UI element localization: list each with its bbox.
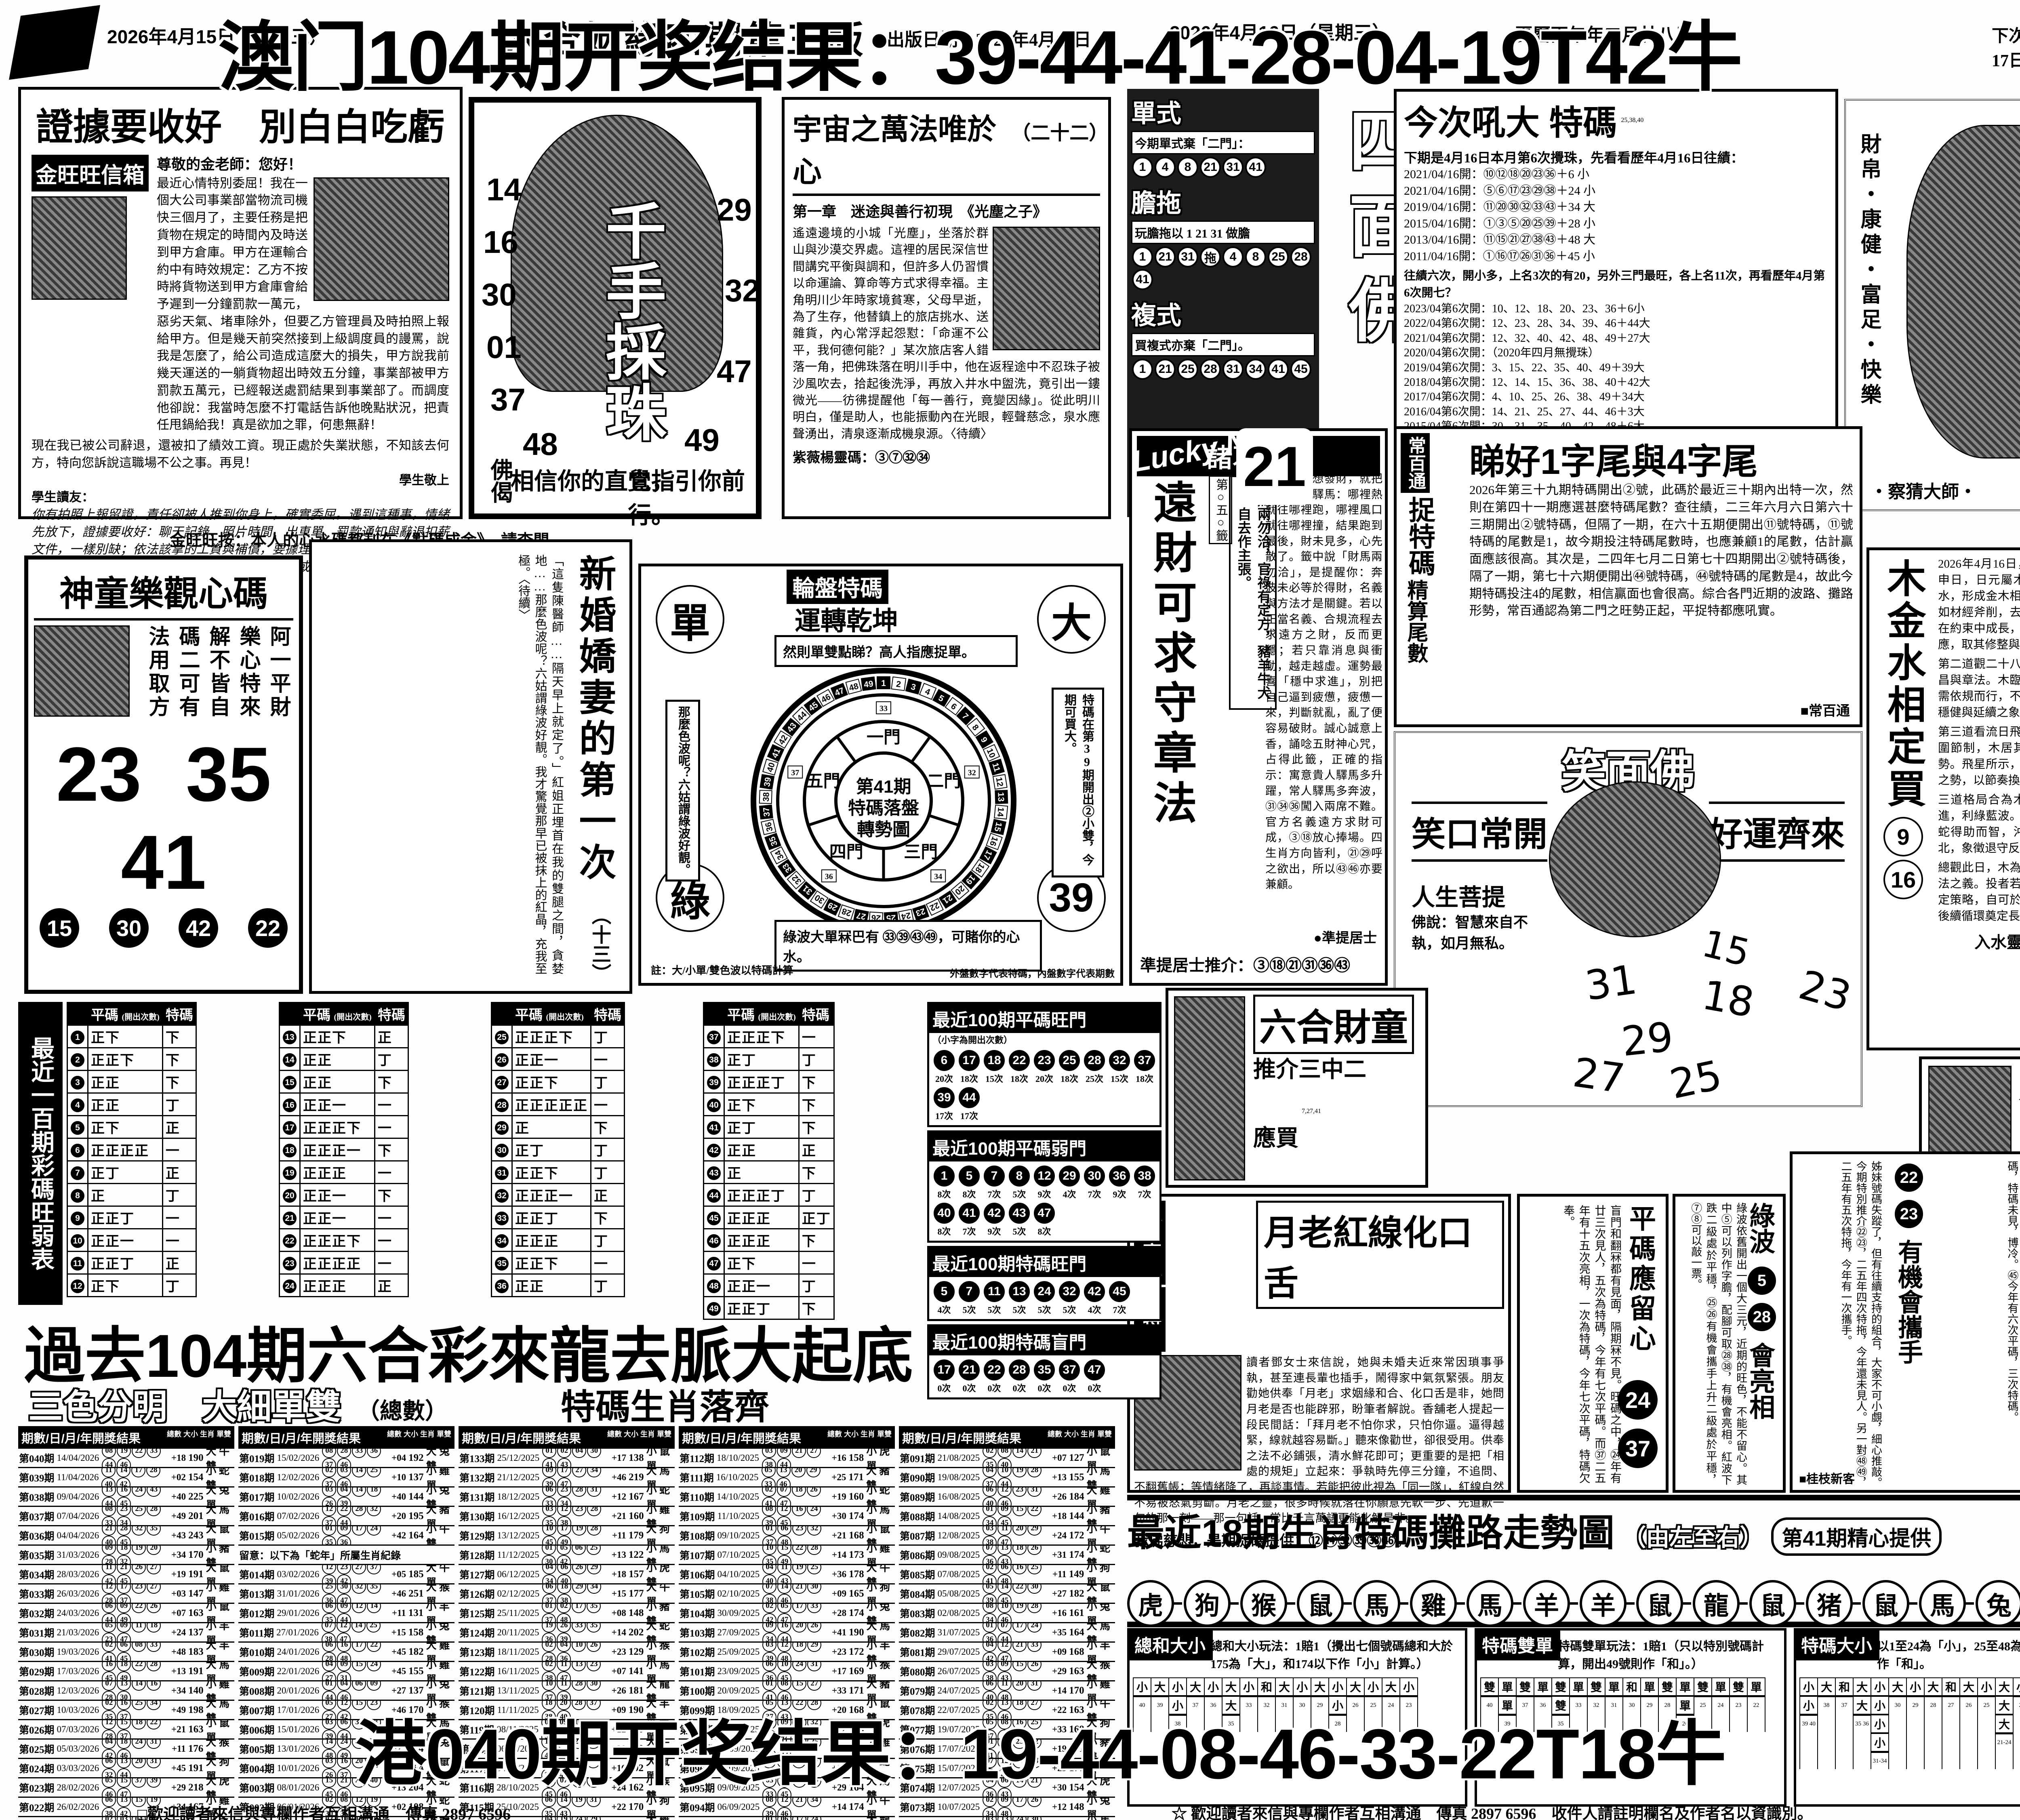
hot-item: 369次 bbox=[1108, 1165, 1131, 1200]
svg-text:49: 49 bbox=[863, 679, 874, 690]
zodiac-circle: 羊 bbox=[1580, 1580, 1627, 1627]
roar-history-line: 2021/04/16開：⑤⑥⑰㉓㉙㊳＋24 小 bbox=[1404, 183, 1828, 200]
roar-history1: 2021/04/16開：⑩⑫⑱⑳㉓㊱＋6 小2021/04/16開：⑤⑥⑰㉓㉙㊳… bbox=[1404, 166, 1828, 265]
lucky-number: 21 bbox=[1236, 428, 1313, 505]
hot-item: 370次 bbox=[1058, 1359, 1081, 1394]
tail-credit: ■常百通 bbox=[1800, 700, 1850, 720]
wood-code-line: 入水靈碼：⑤⑨⑬⑯㉓㉔ bbox=[1938, 929, 2020, 953]
bet-row-note: 玩膽拖以 1 21 31 做膽 bbox=[1131, 221, 1315, 244]
shentong-circle-num: 15 bbox=[40, 908, 79, 948]
laughing-buddha-image bbox=[1549, 781, 1721, 937]
result-row: 第072期08/07/2025 031324303845+21 174小 馬 雙 bbox=[899, 1817, 1115, 1820]
hot-item: 115次 bbox=[983, 1280, 1006, 1316]
thousand-hands-title: 千手採珠 bbox=[587, 200, 675, 442]
zodiac-paren: （由左至右） bbox=[1622, 1519, 1763, 1553]
hot-item: 417次 bbox=[958, 1202, 981, 1237]
hot-item: 2825次 bbox=[1083, 1049, 1106, 1085]
pingma-num-24: 24 bbox=[1618, 1380, 1658, 1420]
hot-item: 210次 bbox=[958, 1359, 981, 1394]
hot-item: 307次 bbox=[1083, 1165, 1106, 1200]
buddha-num: 37 bbox=[490, 381, 526, 418]
result-row: 第016期07/02/2026 122228323744+20 195大 豬 單 bbox=[238, 1507, 455, 1526]
wood-p3: 第三道看流日飛星，水氣暗伏滋養木氣，金氣外圍節制，木居其中平衡全局，形成定而不亂… bbox=[1938, 724, 2020, 789]
cosmos-photo bbox=[993, 227, 1100, 350]
route-sum-label: 總和大小 bbox=[1127, 1628, 1213, 1660]
wood-credit: ●李居明 bbox=[1938, 953, 2020, 972]
result-row: 第018期12/02/2026 020314253746+10 137小 雞 單 bbox=[238, 1468, 455, 1488]
hot-item: 350次 bbox=[1033, 1359, 1056, 1394]
zodiac-circle: 龍 bbox=[1693, 1580, 1740, 1627]
route-column: 和 27 bbox=[1942, 1677, 1959, 1769]
result-row: 第103期27/09/2025 091620263444+41 190大 馬 單 bbox=[679, 1623, 895, 1643]
result-row: 第128期11/12/2025 010506253042+13 122小 馬 雙 bbox=[459, 1546, 675, 1565]
cosmos-chapter: （二十二） bbox=[1011, 117, 1100, 145]
fortune-child-image bbox=[1174, 996, 1245, 1180]
buddha-num: 01 bbox=[486, 329, 522, 366]
zhuge-credit: ●準提居士 bbox=[1313, 927, 1377, 947]
hot-panel-note: （小字為開出次數） bbox=[929, 1033, 1159, 1046]
cosmos-panel: 宇宙之萬法唯於心 （二十二） 第一章 迷途與善行初現 《光塵之子》 遙遠邊境的小… bbox=[782, 97, 1111, 519]
roar-history-line: 2019/04/16開：⑪⑳㉚㉜㉝㊸＋34 大 bbox=[1404, 199, 1828, 216]
result-row: 第094期06/09/2025 081221343946+14 174小 牛 單 bbox=[679, 1798, 895, 1817]
result-row: 第124期20/11/2025 192633353639+14 202大 蛇 雙 bbox=[459, 1623, 675, 1643]
poem-line: 財來自有方 bbox=[142, 696, 293, 719]
route-column: 小 21 bbox=[2013, 1677, 2020, 1769]
hot-item: 620次 bbox=[933, 1049, 955, 1085]
result-row: 第026期07/03/2026 121518222837+21 163小 鼠 單 bbox=[18, 1720, 234, 1740]
hot-item: 170次 bbox=[933, 1359, 955, 1394]
roar-note1: 往績六次，開小多，上名3次的有20，另外三門最旺，各上名11次，再看歷年4月第6… bbox=[1404, 266, 1828, 300]
greenwave-num-28: 28 bbox=[1748, 1303, 1776, 1331]
yuelao-title: 月老紅線化口舌 bbox=[1256, 1201, 1504, 1309]
history-col-1: 期數/日/月/年開獎結果總數 大小 生肖 單雙 第040期14/04/2026 … bbox=[18, 1426, 234, 1820]
route-column: 和 37 bbox=[1835, 1677, 1853, 1769]
roar-history-line: 2013/04/16開：⑪⑮㉑㉗㊳㊸＋48 大 bbox=[1404, 232, 1828, 248]
hot-item: 129次 bbox=[1033, 1165, 1056, 1200]
result-row: 第090期19/08/2025 041019283744+13 155小 馬 雙 bbox=[899, 1468, 1115, 1488]
route-panel-size: 特碼大小 以1至24為「小」，25至48為「大」，開49則作「和」。 小小 39… bbox=[1794, 1628, 2020, 1807]
result-row: 第082期31/07/2025 010717243644+35 164大 馬 雙 bbox=[899, 1623, 1115, 1643]
result-row: 第033期26/03/2026 121723272837+03 147小 雞 單 bbox=[18, 1584, 234, 1604]
result-row: 第104期30/09/2025 020517334247+28 174小 兔 雙 bbox=[679, 1604, 895, 1623]
result-row: 第122期16/11/2025 021113233847+07 141小 馬 單 bbox=[459, 1662, 675, 1681]
letter-badge: 金旺旺信箱 bbox=[32, 155, 149, 191]
zodiac-circle: 鼠 bbox=[1749, 1580, 1796, 1627]
buddha-num: 16 bbox=[483, 224, 518, 261]
svg-text:37: 37 bbox=[762, 807, 772, 817]
hot-item: 3718次 bbox=[1133, 1049, 1156, 1085]
result-row: 第126期02/12/2025 061829343738+15 177大 牛 單 bbox=[459, 1584, 675, 1604]
zhuge-recommend: 準提居士推介：③⑱㉑㉛㊱㊸ bbox=[1140, 952, 1350, 976]
hot-item: 75次 bbox=[958, 1280, 981, 1316]
svg-text:1: 1 bbox=[881, 679, 886, 688]
svg-text:38: 38 bbox=[762, 792, 771, 802]
result-row: 第025期05/03/2026 041824314246+11 176大 猴 雙 bbox=[18, 1740, 234, 1759]
shentong-poem: 阿樂解碼法一心不二用平特皆可取財來自有方 bbox=[136, 625, 293, 718]
zodiac-circle: 猴 bbox=[1240, 1580, 1287, 1627]
shentong-big-num: 35 bbox=[186, 730, 271, 818]
route-column: 小小 39 40 bbox=[1799, 1677, 1817, 1769]
wood-p5: 總觀此日，木為本、金為界、水為養，奎宿示章法之義。投者若能在定日之中穩住心性，遵… bbox=[1938, 860, 2020, 924]
hotweak-table-3: 平碼 (開出次數)特碼25正正正下丁26正正一一27正正下丁28正正正正正一29… bbox=[491, 1002, 699, 1297]
greenwave-panel: 綠波 5 28 會亮相 綠波依舊開出一個大三元，近期的旺色，不能不留心。其中⑤可… bbox=[1673, 1194, 1786, 1493]
wood-p1: 2026年4月16日，二月廿九日，此日為丙午年庚申日，日元屬木，庚金透干制木，申… bbox=[1938, 556, 2020, 653]
ganesha-panel: 財帛・康健・富足・快樂 開運象神 ・察猜大師・ bbox=[1844, 99, 2020, 511]
hot-item: 470次 bbox=[1083, 1359, 1106, 1394]
hot-item: 58次 bbox=[958, 1165, 981, 1200]
result-row: 第080期26/07/2025 030915263843+29 163大 猴 雙 bbox=[899, 1662, 1115, 1681]
wood-metal-water-panel: 木金水相定買 9 16 2026年4月16日，二月廿九日，此日為丙午年庚申日，日… bbox=[1866, 547, 2020, 1050]
result-row: 第009期22/01/2026 040915242731+45 155小 雞 單 bbox=[238, 1662, 455, 1681]
result-row: 第123期18/11/2025 020410262836+23 129小 猴 單 bbox=[459, 1643, 675, 1662]
hotweak-table-2: 平碼 (開出次數)特碼13正正下正14正正丁15正正下16正正一一17正正正下一… bbox=[279, 1002, 487, 1297]
result-row: 第023期28/02/2026 051537394647+29 218大 虎 雙 bbox=[18, 1778, 234, 1798]
route-column: 大大 35 36 bbox=[1853, 1677, 1871, 1769]
svg-text:14: 14 bbox=[995, 807, 1006, 817]
ganesha-image bbox=[1906, 125, 2020, 459]
result-row: 第133期25/12/2025 010204304143+17 138小 鼠 單 bbox=[459, 1449, 675, 1468]
wheel-head-big: 運轉乾坤 bbox=[795, 600, 898, 638]
wheel-footnote: 外盤數字代表特碼，內盤數字代表期數 bbox=[950, 966, 1115, 980]
footer-right: ☆ 歡迎讀者來信與專欄作者互相溝通 傳真 2897 6596 收件人請註明欄名及… bbox=[1172, 1801, 1813, 1820]
tail-side-author: 常百通 bbox=[1401, 433, 1430, 493]
tema-credit: ■桂枝新客 bbox=[1799, 1469, 1855, 1487]
result-row: 第106期04/10/2025 041119254043+36 178大 牛 雙 bbox=[679, 1565, 895, 1584]
wood-p4: 三道格局合為木、金、水，剋中有生，定而能進，利綠藍波。生肖方面，利猴得申位而靈，… bbox=[1938, 792, 2020, 856]
hot-panel-pingma-hot: 最近100期平碼旺門 （小字為開出次數） 620次1718次1815次2218次… bbox=[927, 1002, 1161, 1127]
shentong-title: 神童樂觀心碼 bbox=[34, 565, 293, 621]
sisters-num-23: 23 bbox=[1895, 1200, 1923, 1228]
shentong-panel: 神童樂觀心碼 阿樂解碼法一心不二用平特皆可取財來自有方 23 35 41 153… bbox=[24, 555, 303, 994]
caitong-title: 六合財童 bbox=[1253, 995, 1414, 1054]
route-column: 小 25 bbox=[1977, 1677, 1995, 1769]
route-column: 小小小小 31-34 bbox=[1871, 1677, 1888, 1769]
hot-item: 245次 bbox=[1033, 1280, 1056, 1316]
result-row: 第131期18/12/2025 062328313334+12 167小 蛇 單 bbox=[459, 1488, 675, 1507]
zodiac-circle: 鼠 bbox=[1297, 1580, 1344, 1627]
zodiac-circle: 猪 bbox=[1806, 1580, 1853, 1627]
letter-writer-illustration bbox=[32, 196, 127, 300]
laughing-buddha-panel: 笑面佛 笑口常開 好運齊來 人生菩提 佛說：智慧來自不執，如月無私。 15 31… bbox=[1394, 731, 1862, 1107]
letter-p3: 現在我已被公司辭退，還被扣了績效工資。現正處於失業狀態，不知該去何方，特向您訴說… bbox=[32, 437, 449, 472]
roar-history-line: 2022/04第6次開：12、23、28、34、39、46＋44大 bbox=[1404, 316, 1828, 331]
result-row: 第086期09/08/2025 071318263643+31 174小 蛇 雙 bbox=[899, 1546, 1115, 1565]
pingma-num-37: 37 bbox=[1618, 1429, 1658, 1468]
letterbox-panel: 證據要收好 別白白吃虧 金旺旺信箱 尊敬的金老師：您好！ 最近心情特別委屈！我在… bbox=[18, 87, 463, 519]
cosmos-title: 宇宙之萬法唯於心 bbox=[793, 105, 1006, 190]
route-column: 大 28 bbox=[1924, 1677, 1942, 1769]
caitong-panel: 六合財童 推介三中二 應買 7,27,41 bbox=[1166, 988, 1428, 1188]
pingma-body: 盲門和翻冧都有見面，隔期冧不見。旺碼之中，㉔年有廿三次見人，五次為特碼，今年有七… bbox=[1526, 1205, 1622, 1483]
hot-item: 85次 bbox=[1008, 1165, 1031, 1200]
result-row: 第012期29/01/2026 060912143544+11 131小 羊 單 bbox=[238, 1604, 455, 1623]
xinhun-title: 新婚嬌妻的第一次 bbox=[568, 554, 621, 884]
hotweak-table-1: 平碼 (開出次數)特碼1正下下2正正下下3正正下4正正丁5正下正6正正正正一7正… bbox=[67, 1002, 275, 1297]
verse-line2: 它指引你前行。 bbox=[628, 462, 756, 530]
shentong-circles: 15304222 bbox=[34, 907, 293, 949]
hot-item: 408次 bbox=[933, 1202, 955, 1237]
zodiac-sequence: 虎狗猴鼠馬雞馬羊羊鼠龍鼠猪鼠馬兔蛇牛 bbox=[1127, 1580, 2020, 1627]
route-parity-label: 特碼雙單 bbox=[1475, 1628, 1560, 1660]
result-row: 第132期21/12/2025 091727343947+46 219大 馬 單 bbox=[459, 1468, 675, 1488]
result-row: 第112期18/10/2025 030921273844+16 158小 虎 單 bbox=[679, 1449, 895, 1468]
result-row: 第037期07/04/2026 082325283334+49 201大 馬 單 bbox=[18, 1507, 234, 1526]
zodiac-circle: 馬 bbox=[1919, 1580, 1966, 1627]
shentong-circle-num: 30 bbox=[109, 908, 149, 948]
baby-photo bbox=[34, 625, 130, 717]
footer-left: □歡迎讀者來信與專欄作者互相溝通 傳真 2897 6596 bbox=[137, 1801, 511, 1820]
laugh-hand-18: 18 bbox=[1699, 971, 1758, 1027]
wood-p2: 第二道觀二十八宿，奎宿值日，宿性屬木，主文昌與章法。木臨金日，為整頓與校正之象，… bbox=[1938, 656, 2020, 721]
corner-mark bbox=[9, 5, 100, 80]
result-row: 第038期09/04/2026 131624434445+40 225大 兔 單 bbox=[18, 1488, 234, 1507]
zodiac-circle: 鼠 bbox=[1636, 1580, 1683, 1627]
roar-history-line: 2021/04第6次開：12、32、40、42、48、49＋27大 bbox=[1404, 331, 1828, 346]
xinhun-chapter: （十三） bbox=[585, 905, 613, 983]
wood-headline: 木金水相定買 bbox=[1875, 558, 1931, 810]
hot-item: 77次 bbox=[983, 1165, 1006, 1200]
sisters-title: 有機會攜手 bbox=[1890, 1239, 1926, 1364]
pingma-title: 平碼應留心 bbox=[1621, 1205, 1660, 1354]
tail-side-catch: 捉特碼 bbox=[1401, 496, 1439, 576]
result-row: 第024期03/03/2026 061320313244+45 191大 狗 單 bbox=[18, 1759, 234, 1778]
greenwave-body: 綠波依舊開出一個大三元，近期的旺色，不能不留心。其中⑤可以列作字膽，配腳可取㉘㊳… bbox=[1679, 1202, 1748, 1485]
result-row: 第073期10/07/2025 020917263448+12 148小 兔 單 bbox=[899, 1798, 1115, 1817]
tema-panel: 特碼要吼住 16 45 近期的特碼走勢，轉開小號碼，今次究竟會開大還是小號碼？筆… bbox=[1790, 1151, 2020, 1493]
wheel-corner-da: 大 bbox=[1037, 585, 1106, 654]
route-column: 大大大 21-24 bbox=[1995, 1677, 2013, 1769]
result-row: 第125期25/11/2025 010217353748+08 148小 豬 雙 bbox=[459, 1604, 675, 1623]
bet-row-note: 買複式亦棄「二門」。 bbox=[1131, 333, 1315, 356]
roar-history-line: 2018/04第6次開：12、14、15、36、38、40＋42大 bbox=[1404, 375, 1828, 390]
bet-row-numbers: 148213141 bbox=[1131, 156, 1315, 179]
route-column: 雙 23 bbox=[1729, 1677, 1747, 1732]
result-row: 第088期14/08/2025 010915223445+18 144小 豬 雙 bbox=[899, 1507, 1115, 1526]
truck-photo bbox=[314, 177, 449, 301]
result-row: 第108期09/10/2025 010623323748+21 168小 鼠 雙 bbox=[679, 1526, 895, 1546]
hk-result-overlay: 港040期开奖结果：19-44-08-46-33-22T18牛 bbox=[356, 1697, 1725, 1799]
svg-text:37: 37 bbox=[791, 768, 799, 777]
laugh-quote: 佛說：智慧來自不執，如月無私。 bbox=[1412, 911, 1545, 953]
bet-row: 複式 買複式亦棄「二門」。 121252831344145 bbox=[1131, 295, 1315, 381]
roar-history-line: 2016/04第6次開：14、21、25、27、44、46＋3大 bbox=[1404, 405, 1828, 419]
svg-text:34: 34 bbox=[934, 872, 942, 881]
wheel-corner-dan: 單 bbox=[656, 585, 724, 654]
xinhun-panel: 新婚嬌妻的第一次 （十三） 「這隻陳醫師……隔天早上就定了。」紅姐正埋首在我的雙… bbox=[309, 539, 632, 994]
hot-item: 54次 bbox=[933, 1280, 955, 1316]
zodiac-circle: 狗 bbox=[1184, 1580, 1231, 1627]
hot-item: 294次 bbox=[1058, 1165, 1081, 1200]
hot-panel-tema-hot: 最近100期特碼旺門 54次75次115次135次245次325次424次457… bbox=[927, 1246, 1161, 1321]
svg-text:32: 32 bbox=[968, 768, 976, 777]
result-row: 第039期11/04/2026 111417284042+02 154小 蛇 雙 bbox=[18, 1468, 234, 1488]
roar-special-numbers: 25,38,40 bbox=[1621, 117, 1643, 124]
zodiac-circle: 馬 bbox=[1467, 1580, 1513, 1627]
letter-reply-head: 學生讀友： bbox=[32, 489, 449, 506]
result-row: 第010期24/01/2026 061617222848+45 182大 雞 單 bbox=[238, 1643, 455, 1662]
zodiac-circle: 兔 bbox=[1976, 1580, 2020, 1627]
bet-row: 膽拖 玩膽拖以 1 21 31 做膽 12131拖48252841 bbox=[1131, 183, 1315, 291]
tail-title: 睇好1字尾與4字尾 bbox=[1469, 433, 1758, 484]
zhuge-body: 有人一心想發財，就把自己變成驛馬：哪裡熱就往哪裡跑，哪裡風口就往哪裡撞，結果跑到… bbox=[1265, 471, 1382, 900]
hot-panel-tema-blind: 最近100期特碼盲門 170次210次220次280次350次370次470次 bbox=[927, 1324, 1161, 1399]
sisters-num-22: 22 bbox=[1895, 1164, 1923, 1192]
svg-text:36: 36 bbox=[825, 872, 833, 881]
wheel-arrow-bottom: 綠波大單冧巴有 ㉝㊴㊸㊾，可賭你的心水。 bbox=[774, 920, 1042, 972]
hot-item: 2320次 bbox=[1033, 1049, 1056, 1085]
wood-num-16: 16 bbox=[1883, 860, 1923, 899]
wheel-head-small: 輪盤特碼 bbox=[787, 570, 888, 604]
result-row: 第089期16/08/2025 061223314046+26 184大 雞 單 bbox=[899, 1488, 1115, 1507]
tema-body: 近期的特碼走勢，轉開小號碼，今次究竟會開大還是小號碼？筆者今次以大、小號碼各一作… bbox=[1961, 1161, 2020, 1488]
buddha-num: 30 bbox=[482, 276, 517, 313]
hot-item: 2518次 bbox=[1058, 1049, 1081, 1085]
result-row: 第129期13/12/2025 101719284549+11 179大 狗 單 bbox=[459, 1526, 675, 1546]
bet-row-label: 膽拖 bbox=[1131, 189, 1181, 217]
shentong-circle-num: 42 bbox=[179, 908, 218, 948]
shentong-big-num: 23 bbox=[56, 730, 141, 818]
result-row: 第028期12/03/2026 071314162830+34 140小 雞 雙 bbox=[18, 1681, 234, 1701]
wood-num-9: 9 bbox=[1883, 817, 1923, 856]
route-column: 小 29 bbox=[1906, 1677, 1924, 1769]
newspaper-page: 2026年4月15日（星期三） 六合姻緣四期第三版 出版日期：2026年4月16… bbox=[0, 0, 2020, 1820]
hot-item: 135次 bbox=[1008, 1280, 1031, 1316]
sisters-body: 姊妹號碼失蹤了，但有往續支持的組合，大家不可小覷，細心推敲。今期特別推介㉒㉓，二… bbox=[1798, 1161, 1883, 1488]
hot-item: 387次 bbox=[1133, 1165, 1156, 1200]
laugh-hand-25: 25 bbox=[1666, 1051, 1726, 1108]
hot-item: 1718次 bbox=[958, 1049, 981, 1085]
hot-item: 1815次 bbox=[983, 1049, 1006, 1085]
buddha-num: 14 bbox=[486, 171, 522, 208]
result-row: 第081期29/07/2025 041221334247+09 168小 羊 單 bbox=[899, 1643, 1115, 1662]
laugh-sub: 人生菩提 bbox=[1412, 878, 1505, 912]
result-row: 第105期02/10/2025 071421303846+09 165小 狗 單 bbox=[679, 1584, 895, 1604]
svg-text:一門: 一門 bbox=[867, 728, 901, 747]
laugh-right-motto: 好運齊來 bbox=[1709, 802, 1845, 862]
bet-row-note: 今期單式棄「二門」： bbox=[1131, 131, 1315, 154]
hot-item: 435次 bbox=[1008, 1202, 1031, 1237]
buddha-num: 32 bbox=[725, 272, 760, 309]
poem-line: 阿樂解碼法 bbox=[142, 625, 293, 649]
hot-panel-pingma-weak: 最近100期平碼弱門 18次58次77次85次129次294次307次369次3… bbox=[927, 1130, 1161, 1243]
hot-item: 429次 bbox=[983, 1202, 1006, 1237]
svg-text:13: 13 bbox=[996, 792, 1006, 802]
caitong-line2: 應買 bbox=[1253, 1120, 1298, 1153]
svg-text:三門: 三門 bbox=[904, 842, 938, 861]
result-row: 第085期07/08/2025 020616254148+11 149小 狗 單 bbox=[899, 1565, 1115, 1584]
laugh-hand-29: 29 bbox=[1619, 1013, 1675, 1066]
tail-side-calc: 精算尾數 bbox=[1401, 579, 1431, 663]
laugh-hand-15: 15 bbox=[1698, 922, 1754, 975]
tail-body: 2026年第三十九期特碼開出②號，此碼於最近三十期內出特一次，然則在第四十一期應… bbox=[1469, 482, 1853, 620]
buddha-num: 47 bbox=[717, 353, 752, 390]
hot-item: 220次 bbox=[983, 1359, 1006, 1394]
svg-text:33: 33 bbox=[880, 704, 888, 713]
wheel-note: 註：大/小單/雙色波以特碼計算 bbox=[651, 962, 793, 977]
result-row: 第110期14/10/2025 020718264147+19 160小 蛇 雙 bbox=[679, 1488, 895, 1507]
wheel-center-text: 第41期特碼落盤轉勢圖 bbox=[815, 776, 952, 840]
result-row: 第027期10/03/2026 021625343537+49 198大 馬 雙 bbox=[18, 1701, 234, 1720]
hot-item: 325次 bbox=[1058, 1280, 1081, 1316]
result-row: 第030期19/03/2026 020608334145+48 183大 羊 單 bbox=[18, 1643, 234, 1662]
route-column: 大 30 bbox=[1888, 1677, 1906, 1769]
result-row: 第040期14/04/2026 081922334446+18 190大 牛 雙 bbox=[18, 1449, 234, 1468]
roar-history-line: 2023/04第6次開：10、12、18、20、23、36＋6小 bbox=[1404, 302, 1828, 316]
hot-item: 457次 bbox=[1108, 1280, 1131, 1316]
hot-item: 4417次 bbox=[958, 1086, 981, 1122]
macau-result-overlay: 澳门104期开奖结果：39-44-41-28-04-19T42牛 bbox=[218, 0, 1741, 106]
roar-history-line: 2017/04第6次開：4、10、25、26、38、49＋34大 bbox=[1404, 390, 1828, 404]
roar-history-line: 2021/04/16開：⑩⑫⑱⑳㉓㊱＋6 小 bbox=[1404, 166, 1828, 183]
shentong-circle-num: 22 bbox=[248, 908, 288, 948]
zodiac-circle: 馬 bbox=[1353, 1580, 1400, 1627]
hot-item: 18次 bbox=[933, 1165, 955, 1200]
cosmos-subtitle: 第一章 迷途與善行初現 《光塵之子》 bbox=[793, 200, 1100, 221]
hot-item: 2218次 bbox=[1008, 1049, 1031, 1085]
zodiac-circle: 虎 bbox=[1127, 1580, 1174, 1627]
route-column: 大 26 bbox=[1959, 1677, 1977, 1769]
ganesha-side-text: 財帛・康健・富足・快樂 bbox=[1854, 133, 1884, 408]
buddha-num: 29 bbox=[717, 191, 752, 228]
result-row: 留意：以下為「蛇年」所屬生肖紀錄 bbox=[238, 1546, 455, 1565]
caitong-numbers: 7,27,41 bbox=[1302, 1108, 1321, 1115]
result-row: 第102期25/09/2025 031218293948+23 172小 羊 雙 bbox=[679, 1643, 895, 1662]
poem-line: 平特皆可取 bbox=[142, 672, 293, 696]
zodiac-circle: 羊 bbox=[1523, 1580, 1570, 1627]
result-row: 第109期11/10/2025 081216243945+30 174小 馬 單 bbox=[679, 1507, 895, 1526]
bet-row-label: 複式 bbox=[1131, 302, 1181, 330]
result-row: 第029期17/03/2026 161822284549+13 191大 馬 單 bbox=[18, 1662, 234, 1681]
result-row: 第017期10/02/2026 030414182639+40 144小 兔 雙 bbox=[238, 1488, 455, 1507]
laugh-left-motto: 笑口常開 bbox=[1412, 802, 1547, 862]
tail-panel: 常百通 捉特碼 精算尾數 睇好1字尾與4字尾 2026年第三十九期特碼開出②號，… bbox=[1394, 426, 1862, 727]
roar-history-line: 2015/04/16開：①③⑤⑳㉕㊴＋28 小 bbox=[1404, 216, 1828, 232]
result-row: 第130期16/12/2025 031223283538+21 160小 雞 雙 bbox=[459, 1507, 675, 1526]
hot-item: 478次 bbox=[1033, 1202, 1056, 1237]
wheel-arrow-left: 那麼色波呢？六姑謂綠波好靚。 bbox=[665, 700, 700, 882]
result-row: 第011期27/01/2026 071214253847+15 158小 兔 雙 bbox=[238, 1623, 455, 1643]
laugh-hand-23: 23 bbox=[1794, 961, 1856, 1021]
result-row: 第127期06/12/2025 040626293440+18 157小 虎 雙 bbox=[459, 1565, 675, 1584]
hot-item: 3215次 bbox=[1108, 1049, 1131, 1085]
hot-item: 3917次 bbox=[933, 1086, 955, 1122]
zodiac-circle: 雞 bbox=[1410, 1580, 1457, 1627]
result-row: 第036期04/04/2026 212832354045+43 243大 鼠 單 bbox=[18, 1526, 234, 1546]
result-row: 第093期04/09/2025 010617243847+31 164大 龍 雙 bbox=[679, 1817, 895, 1820]
xinhun-body: 「這隻陳醫師……隔天早上就定了。」紅姐正埋首在我的雙腿之間，貪婪地……那麼色波呢… bbox=[339, 554, 565, 974]
bet-row-numbers: 12131拖48252841 bbox=[1131, 246, 1315, 291]
result-row: 第111期16/10/2025 051320293346+25 171大 豬 雙 bbox=[679, 1468, 895, 1488]
result-row: 第107期07/10/2025 101522283549+14 173小 雞 單 bbox=[679, 1546, 895, 1565]
hot-item: 424次 bbox=[1083, 1280, 1106, 1316]
history-sub1: 三色分明 大細單雙 bbox=[28, 1378, 341, 1429]
poem-line: 一心不二用 bbox=[142, 649, 293, 672]
result-row: 第034期28/03/2026 112126274245+19 191大 鼠 單 bbox=[18, 1565, 234, 1584]
result-row: 第101期23/09/2025 061024313645+17 169小 猴 單 bbox=[679, 1662, 895, 1681]
svg-text:12: 12 bbox=[994, 776, 1005, 787]
zhuge-panel: 諸葛聖籤 遠財可求守章法 第○五○籤 財馬兩勿洽，官祿有定方，豬羊牛犬去，自去作… bbox=[1129, 428, 1388, 986]
caitong-line1: 推介三中二 bbox=[1253, 1051, 1366, 1084]
laugh-hand-31: 31 bbox=[1582, 956, 1639, 1010]
hotweak-title-strip: 最近一百期彩碼旺弱表 bbox=[18, 1002, 63, 1305]
route-column: 大 38 bbox=[1817, 1677, 1835, 1769]
wheel-arrow-top: 然則單雙點睇？高人指應捉單。 bbox=[774, 635, 1018, 667]
next-issue-date: 下次出版日期：2026年4月17日 bbox=[1992, 22, 2020, 72]
result-row: 第087期12/08/2025 031120293847+24 172小 牛 單 bbox=[899, 1526, 1115, 1546]
buddha-num: 48 bbox=[523, 426, 558, 463]
result-row: 第031期21/03/2026 050911182347+24 137小 羊 單 bbox=[18, 1623, 234, 1643]
history-sub2: 特碼生肖落齊 bbox=[561, 1378, 769, 1429]
